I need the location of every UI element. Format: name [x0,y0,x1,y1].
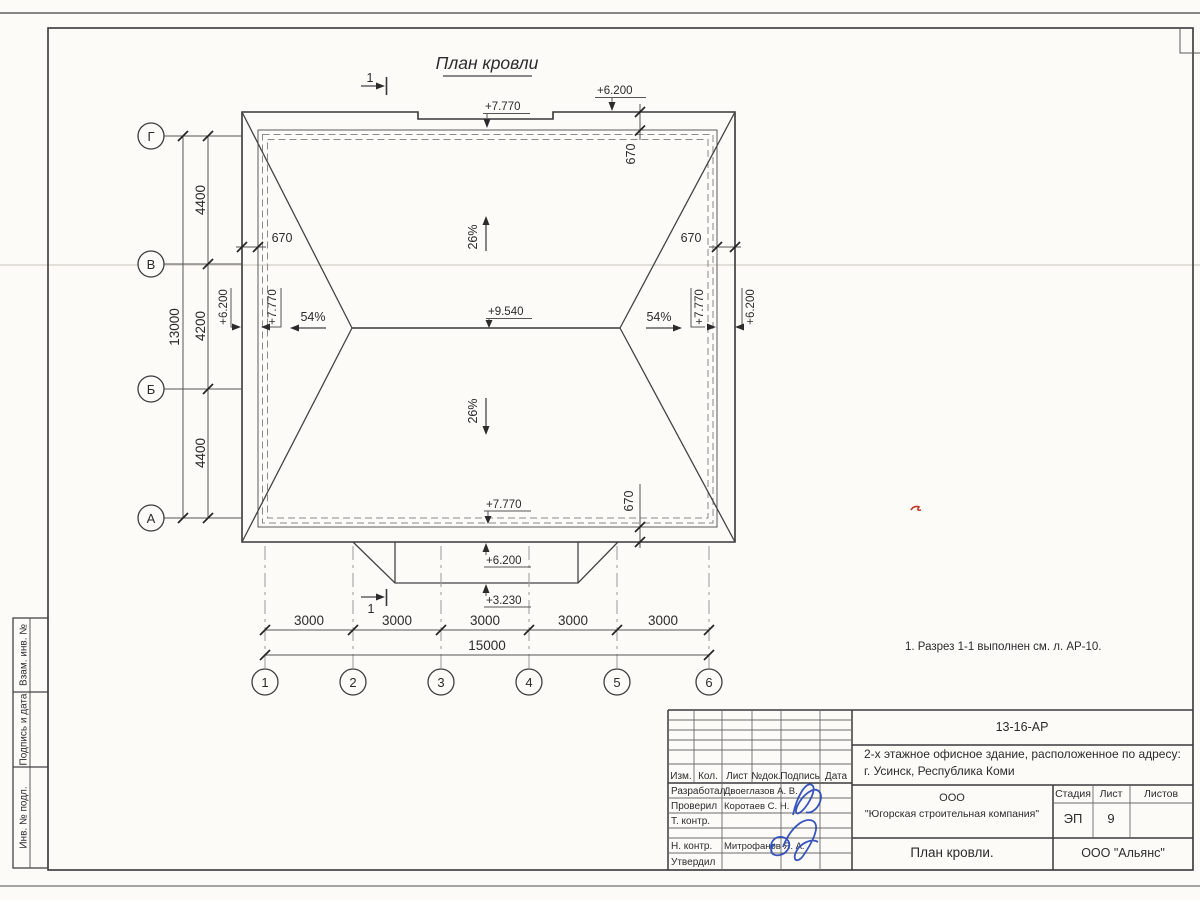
elevation-canopy: +6.200 [483,543,532,567]
dim-3000-4: 3000 [558,613,588,628]
dim-3000-3: 3000 [470,613,500,628]
stamp-label-vzam: Взам. инв. № [19,624,30,686]
role-approved: Утвердил [671,857,715,868]
elevation-value: +7.770 [486,499,522,511]
dim-total-15000: 15000 [468,638,506,653]
dim-4200: 4200 [193,311,208,341]
col-izm: Изм. [670,771,691,782]
elevation-right-eave: +6.200 [735,288,757,331]
doc-number: 13-16-АР [996,720,1049,734]
section-mark-top: 1 [361,71,387,95]
slope-east: 54% [646,310,682,332]
elevation-value: +6.200 [218,289,230,325]
hip-lines [242,112,735,542]
elevation-value: +6.200 [745,289,757,325]
slope-south: 26% [466,398,490,435]
col-kol: Кол. [698,771,718,782]
red-check-mark [911,506,921,510]
elevation-right-wall: +7.770 [691,288,716,331]
dim-4400-top: 4400 [193,185,208,215]
elevation-value: +9.540 [488,306,524,318]
company-line1: ООО [939,792,965,804]
slope-value: 54% [300,310,325,324]
slope-value: 26% [466,224,480,249]
col-list: Лист [726,771,748,782]
name-developed: Двоеглазов А. В. [724,786,798,797]
slope-west: 54% [290,310,326,332]
org-name: ООО "Альянс" [1081,846,1165,860]
elevation-left-wall: +7.770 [261,288,281,331]
col-data: Дата [825,771,848,782]
dim-3000-5: 3000 [648,613,678,628]
axis-5: 5 [613,675,620,690]
elevation-top-eave: +6.200 [595,85,646,111]
role-ncontrol: Н. контр. [671,841,712,852]
scanned-drawing-sheet: Взам. инв. № Подпись и дата Инв. № подл.… [0,0,1200,900]
project-title-line1: 2-х этажное офисное здание, расположенно… [864,747,1181,761]
elevation-value: +7.770 [267,289,279,325]
overhang-value: 670 [624,144,638,165]
dim-3000-2: 3000 [382,613,412,628]
elevation-value: +6.200 [486,555,522,567]
col-dok: №док. [751,771,780,782]
dim-4400-bottom: 4400 [193,438,208,468]
overhang-value: 670 [272,231,293,245]
overhang-left: 670 [236,231,292,252]
left-stamp-column: Взам. инв. № Подпись и дата Инв. № подл. [13,618,48,868]
stamp-label-inv: Инв. № подл. [19,786,30,848]
stage-label: Стадия [1055,788,1091,800]
role-developed: Разработал [671,785,726,797]
elevation-value: +7.770 [485,101,521,113]
dim-total-13000: 13000 [167,308,182,346]
left-axis-bubbles: Г В Б А [138,123,164,531]
overhang-bottom-right: 670 [622,484,645,548]
section-number: 1 [367,71,374,85]
elevation-canopy-edge: +3.230 [483,584,532,607]
sheet-value: 9 [1107,811,1114,826]
elevation-bottom-wall: +7.770 [484,499,531,524]
slope-labels: 26% 26% 54% 54% [290,216,682,435]
section-mark-bottom: 1 [361,589,387,616]
elevation-marks: +7.770 +6.200 +9.540 +6.200 +7.770 +7.77… [218,85,757,607]
elevation-value: +7.770 [694,289,706,325]
name-checked: Коротаев С. Н. [724,801,789,812]
elevation-ridge: +9.540 [486,306,533,328]
sheets-label: Листов [1144,788,1179,800]
sheet-label: Лист [1100,788,1123,800]
role-checked: Проверил [671,801,717,812]
slope-value: 54% [646,310,671,324]
overhang-value: 670 [681,231,702,245]
stage-value: ЭП [1064,811,1083,826]
elevation-value: +6.200 [597,85,633,97]
roof-plan-drawing: Взам. инв. № Подпись и дата Инв. № подл.… [0,0,1200,900]
drawing-title: План кровли [436,53,539,76]
col-podpis: Подпись [780,771,820,782]
elevation-left-eave: +6.200 [218,288,241,331]
bottom-dimensions: 3000 3000 3000 3000 3000 15000 [260,613,714,660]
eave-outline [242,112,735,542]
axis-a: А [147,511,156,526]
title-block: 13-16-АР 2-х этажное офисное здание, рас… [668,710,1193,870]
left-dimensions: 4400 4200 4400 13000 [164,131,242,523]
elevation-value: +3.230 [486,595,522,607]
dim-3000-1: 3000 [294,613,324,628]
overhang-right: 670 [681,231,741,252]
page-title: План кровли [436,53,539,73]
role-tcontrol: Т. контр. [671,816,710,827]
drawing-note: 1. Разрез 1-1 выполнен см. л. АР-10. [905,641,1102,653]
drawing-frame-border [48,28,1193,870]
slope-value: 26% [466,398,480,423]
axis-v: В [147,257,156,272]
elevation-top-notch: +7.770 [483,101,530,128]
name-ncontrol: Митрофанов Я. А. [724,841,805,852]
axis-2: 2 [349,675,356,690]
slope-north: 26% [466,216,490,251]
company-line2: "Югорская строительная компания" [865,808,1039,820]
axis-1: 1 [261,675,268,690]
axis-6: 6 [705,675,712,690]
stamp-label-podpis: Подпись и дата [19,693,30,765]
bottom-axis-bubbles: 1 2 3 4 5 6 [252,669,722,695]
axis-3: 3 [437,675,444,690]
axis-g: Г [147,129,154,144]
project-title-line2: г. Усинск, Республика Коми [864,764,1015,778]
axis-b: Б [147,382,156,397]
section-number: 1 [368,602,375,616]
sheet-title: План кровли. [910,845,993,860]
axis-4: 4 [525,675,532,690]
overhang-value: 670 [622,491,636,512]
corner-stamp-box [1180,28,1200,53]
